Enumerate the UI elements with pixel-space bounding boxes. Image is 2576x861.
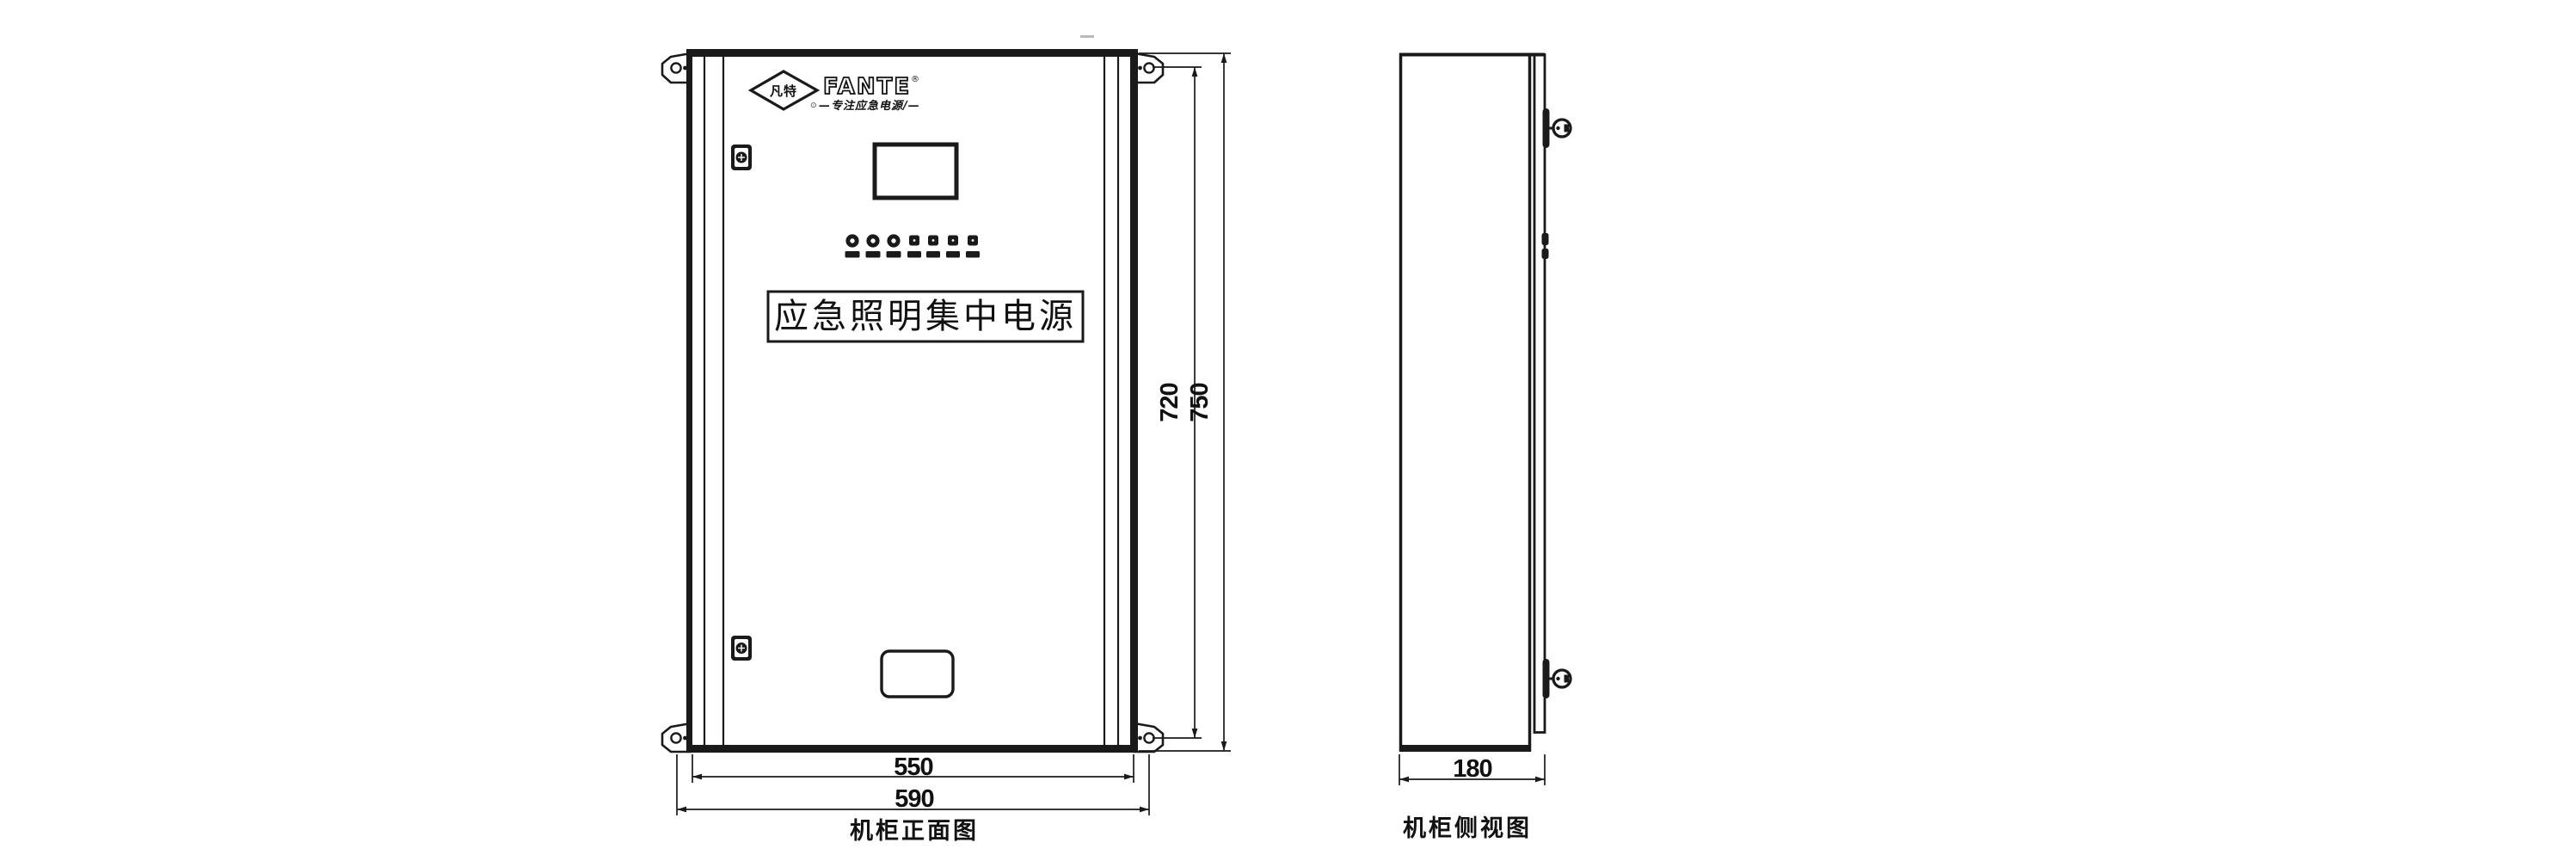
slogan-bullet-icon: ⊙ [810,101,817,110]
cable-entry-recess [882,651,953,697]
arrow-left-icon [1399,777,1409,783]
mounting-dot-icon [1138,66,1142,71]
cabinet-engineering-drawing: 凡特 FANTE ® ⊙ —专注应急电源/— [0,0,2576,861]
nameplate: 应急照明集中电源 [768,292,1083,341]
side-view: 180 机柜侧视图 [1399,55,1571,843]
side-key-lock-upper [1543,108,1571,148]
arrow-up-icon [1221,53,1227,63]
dim-590-label: 590 [895,785,933,813]
front-view: 凡特 FANTE ® ⊙ —专注应急电源/— [662,49,1231,845]
mounting-ear-top-right [1134,53,1163,83]
side-cabinet-body [1401,55,1530,751]
dim-180-label: 180 [1453,755,1491,783]
led-indicator-3 [887,234,901,257]
cabinet-top-edge [686,49,1138,57]
display-screen [875,145,956,198]
brand-slogan: —专注应急电源/— [819,99,920,113]
mounting-hole-icon [1144,733,1153,742]
dim-720-label: 720 [1156,383,1183,421]
arrow-down-icon [1192,729,1198,738]
dim-750-label: 750 [1186,383,1214,421]
panel-button-2 [926,236,940,258]
scan-artifact-dash [1080,35,1094,38]
dimension-550: 550 [692,753,1134,783]
mounting-hole-icon [671,733,680,742]
side-view-title: 机柜侧视图 [1403,815,1532,842]
arrow-up-icon [1192,67,1198,77]
cabinet-bottom-edge [686,745,1138,753]
side-door-panel [1534,55,1545,733]
arrow-right-icon [1535,777,1545,783]
front-view-title: 机柜正面图 [850,818,979,845]
cabinet-left-edge [686,52,692,750]
panel-button-3 [946,236,960,258]
nameplate-text: 应急照明集中电源 [774,297,1077,336]
drawing-canvas: 凡特 FANTE ® ⊙ —专注应急电源/— [0,0,2576,861]
indicator-panel [845,234,981,257]
door-lock-upper [731,145,752,170]
mounting-hole-icon [1144,63,1153,72]
arrow-left-icon [677,807,686,813]
mounting-hole-icon [671,63,680,72]
dimension-750: 750 [1139,53,1231,751]
registered-mark: ® [911,75,919,84]
led-indicator-2 [866,234,881,257]
arrow-down-icon [1221,741,1227,751]
door-lock-lower [731,636,752,661]
panel-button-4 [966,236,980,258]
arrow-left-icon [692,774,702,780]
panel-button-1 [907,236,921,258]
dim-550-label: 550 [894,753,932,781]
logo-diamond-text: 凡特 [770,83,797,99]
arrow-right-icon [1124,774,1134,780]
cabinet-right-edge [1130,52,1138,750]
dimension-180: 180 [1399,754,1545,785]
side-key-lock-lower [1543,659,1571,698]
side-cabinet-bottom-edge [1399,745,1531,752]
cabinet-body [686,49,1138,753]
mounting-dot-icon [1138,736,1142,741]
arrow-right-icon [1140,807,1149,813]
brand-name: FANTE [823,74,911,100]
led-indicator-1 [845,234,860,257]
brand-logo: 凡特 FANTE ® ⊙ —专注应急电源/— [751,71,920,113]
